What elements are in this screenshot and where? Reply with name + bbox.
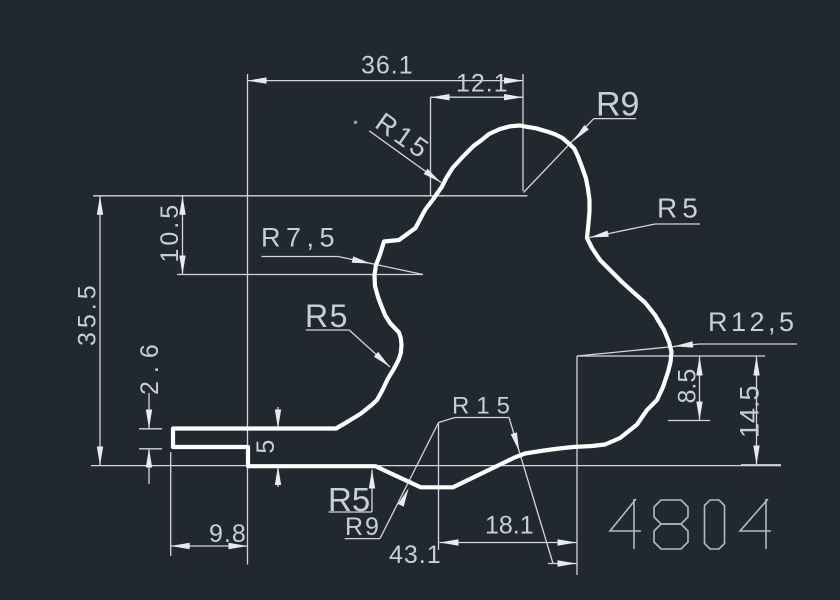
svg-text:R12,5: R12,5	[708, 307, 798, 337]
svg-text:2.6: 2.6	[136, 336, 164, 395]
svg-text:35.5: 35.5	[74, 281, 102, 346]
svg-text:36.1: 36.1	[361, 52, 414, 80]
svg-text:43.1: 43.1	[389, 541, 442, 569]
svg-text:R7,5: R7,5	[261, 223, 340, 253]
svg-text:R9: R9	[596, 86, 639, 124]
svg-text:10.5: 10.5	[156, 202, 184, 263]
svg-text:R5: R5	[657, 193, 703, 224]
svg-text:R5: R5	[305, 298, 349, 334]
svg-text:9.8: 9.8	[209, 520, 247, 548]
svg-text:R15: R15	[452, 393, 517, 420]
svg-text:12.1: 12.1	[456, 69, 509, 97]
svg-text:14.5: 14.5	[735, 385, 765, 438]
svg-text:18.1: 18.1	[485, 512, 534, 540]
svg-text:5: 5	[252, 440, 280, 454]
svg-text:R5: R5	[328, 481, 370, 518]
svg-text:8.5: 8.5	[674, 369, 702, 404]
